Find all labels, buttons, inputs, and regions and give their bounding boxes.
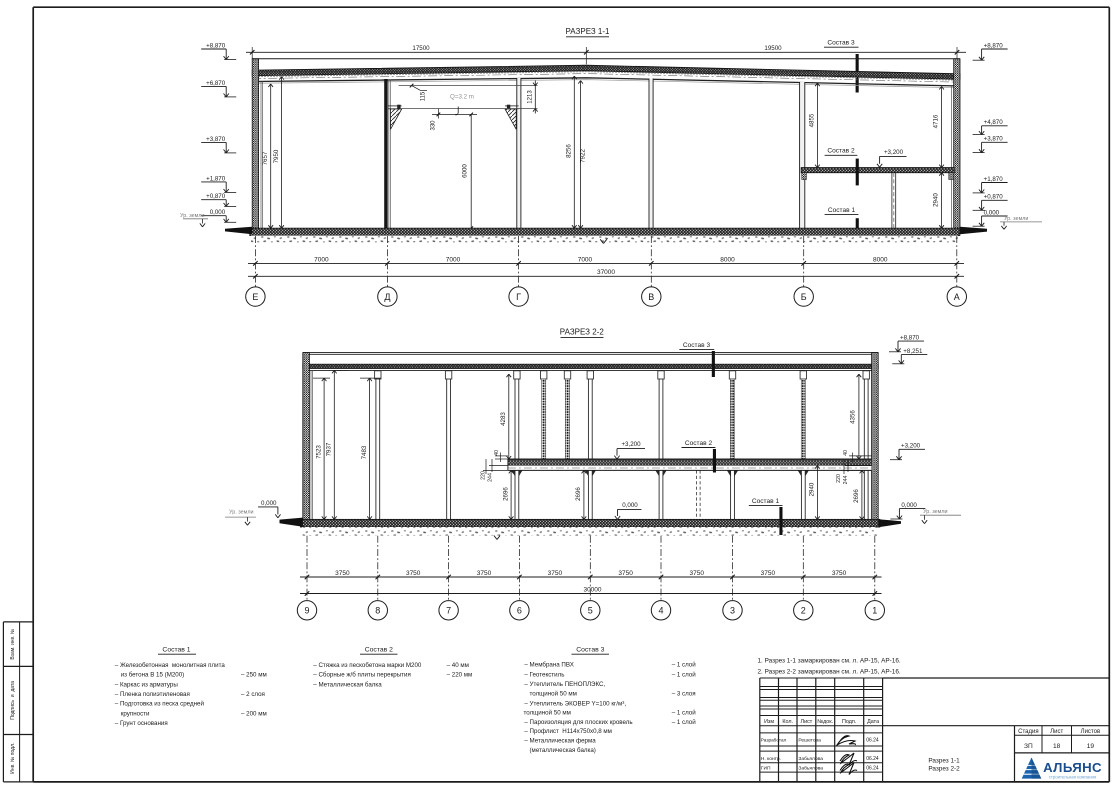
svg-text:В: В	[648, 292, 654, 302]
svg-text:– 1 слой: – 1 слой	[672, 710, 697, 717]
svg-text:Лист: Лист	[1050, 729, 1063, 735]
svg-text:4716: 4716	[932, 114, 939, 128]
svg-text:– Грунт основания: – Грунт основания	[115, 720, 168, 727]
svg-text:5: 5	[588, 606, 593, 616]
svg-text:Разрез 2-2: Разрез 2-2	[928, 765, 960, 772]
svg-text:3750: 3750	[832, 570, 847, 577]
svg-text:ЗП: ЗП	[1024, 743, 1033, 750]
svg-text:– 1 слой: – 1 слой	[672, 719, 697, 726]
svg-text:7922: 7922	[579, 149, 586, 163]
svg-text:+3,200: +3,200	[884, 149, 904, 156]
svg-text:06.24: 06.24	[866, 756, 879, 762]
svg-text:толщиной 50 мм: толщиной 50 мм	[524, 710, 571, 717]
svg-text:7937: 7937	[326, 442, 333, 456]
svg-text:Дата: Дата	[867, 719, 879, 725]
svg-text:0,000: 0,000	[901, 502, 917, 509]
svg-text:Н. контр.: Н. контр.	[761, 756, 781, 762]
svg-text:ГИП: ГИП	[761, 765, 771, 771]
svg-text:– 200 мм: – 200 мм	[241, 710, 267, 717]
svg-text:Состав 3: Состав 3	[576, 647, 604, 654]
svg-text:Состав 1: Состав 1	[828, 207, 856, 214]
svg-text:4: 4	[658, 606, 663, 616]
svg-text:– Металлическая балка: – Металлическая балка	[313, 681, 382, 688]
svg-text:Ур. земли: Ур. земли	[229, 510, 253, 516]
svg-text:толщиной 50 мм: толщиной 50 мм	[530, 691, 577, 698]
svg-text:17500: 17500	[412, 45, 430, 52]
svg-text:3750: 3750	[548, 570, 563, 577]
svg-text:крупности: крупности	[121, 710, 150, 717]
svg-text:2696: 2696	[502, 487, 509, 501]
svg-text:8000: 8000	[720, 256, 735, 263]
svg-text:+3,200: +3,200	[621, 441, 641, 448]
svg-text:3750: 3750	[335, 570, 350, 577]
svg-text:220: 220	[836, 474, 842, 483]
svg-text:19500: 19500	[764, 45, 782, 52]
svg-text:Забьялова: Забьялова	[798, 765, 823, 771]
svg-text:Изм: Изм	[764, 719, 774, 725]
svg-text:+1,870: +1,870	[206, 175, 226, 182]
svg-text:Состав 2: Состав 2	[365, 647, 393, 654]
svg-text:Г: Г	[516, 292, 521, 302]
svg-text:Ур. земли: Ур. земли	[1004, 216, 1028, 222]
svg-text:– Пленка полиэтиленовая: – Пленка полиэтиленовая	[115, 691, 190, 698]
svg-text:Подп.: Подп.	[842, 719, 856, 725]
svg-text:А: А	[954, 292, 960, 302]
svg-text:4356: 4356	[850, 410, 857, 424]
svg-text:– Профлист Н114х750х0,8 мм: – Профлист Н114х750х0,8 мм	[524, 728, 612, 735]
svg-text:Состав 3: Состав 3	[683, 342, 711, 349]
svg-text:Ур. земли: Ур. земли	[180, 213, 204, 219]
svg-text:Инв. № подл.: Инв. № подл.	[10, 743, 16, 774]
svg-text:Состав 2: Состав 2	[827, 148, 855, 155]
svg-text:8000: 8000	[873, 256, 888, 263]
svg-text:0,000: 0,000	[622, 502, 638, 509]
svg-text:РАЗРЕЗ 1-1: РАЗРЕЗ 1-1	[566, 27, 611, 36]
svg-text:– Железобетонная монолитная п: – Железобетонная монолитная плита	[115, 662, 226, 669]
svg-text:6: 6	[517, 606, 522, 616]
svg-text:+4,870: +4,870	[984, 119, 1004, 126]
svg-text:40: 40	[494, 450, 500, 456]
svg-text:из бетона В 15 (М200): из бетона В 15 (М200)	[121, 672, 185, 679]
svg-text:+3,870: +3,870	[206, 136, 226, 143]
svg-text:Разработал: Разработал	[761, 737, 787, 742]
svg-text:+3,200: +3,200	[901, 443, 921, 450]
svg-text:Состав 3: Состав 3	[827, 40, 855, 47]
svg-text:– 220 мм: – 220 мм	[447, 672, 473, 679]
svg-text:(металлическая балка): (металлическая балка)	[530, 747, 596, 754]
svg-text:2. Разрез 2-2 замаркирован см.: 2. Разрез 2-2 замаркирован см. л. АР-15,…	[758, 669, 901, 676]
svg-text:3750: 3750	[761, 570, 776, 577]
svg-text:+3,870: +3,870	[984, 136, 1004, 143]
svg-text:Забьялова: Забьялова	[798, 756, 823, 762]
svg-text:Состав 2: Состав 2	[685, 440, 713, 447]
svg-text:Лист: Лист	[801, 719, 813, 725]
svg-text:3750: 3750	[406, 570, 421, 577]
svg-text:2696: 2696	[575, 487, 582, 501]
svg-text:№док.: №док.	[817, 719, 833, 725]
svg-text:7000: 7000	[578, 256, 593, 263]
svg-text:7657: 7657	[262, 151, 269, 165]
svg-text:6000: 6000	[462, 164, 469, 178]
svg-text:Ур. земли: Ур. земли	[923, 509, 947, 515]
svg-text:– Стяжка из пескобетона марки: – Стяжка из пескобетона марки М200	[313, 662, 422, 669]
svg-text:Листов: Листов	[1081, 729, 1101, 735]
svg-text:0,000: 0,000	[210, 209, 226, 216]
svg-text:3750: 3750	[618, 570, 633, 577]
svg-text:– Мембрана ПВХ: – Мембрана ПВХ	[524, 662, 573, 669]
svg-text:30000: 30000	[583, 587, 601, 594]
svg-text:8: 8	[375, 606, 380, 616]
svg-text:0,000: 0,000	[984, 209, 1000, 216]
svg-text:Кол.: Кол.	[782, 719, 793, 725]
svg-text:– Утеплитель ЭКОВЕР Y=100 кг/м: – Утеплитель ЭКОВЕР Y=100 кг/м³,	[524, 700, 626, 707]
svg-text:– 3 слоя: – 3 слоя	[672, 691, 696, 698]
svg-text:1: 1	[872, 606, 877, 616]
svg-text:7: 7	[446, 606, 451, 616]
svg-text:3750: 3750	[690, 570, 705, 577]
svg-text:06.24: 06.24	[866, 766, 879, 772]
svg-text:– Металлическая ферма: – Металлическая ферма	[524, 738, 596, 745]
svg-text:244: 244	[843, 476, 849, 485]
svg-text:Стадия: Стадия	[1018, 729, 1038, 735]
svg-text:3: 3	[730, 606, 735, 616]
svg-text:– Подготовка из песка средней: – Подготовка из песка средней	[115, 701, 205, 708]
svg-text:Разрез 1-1: Разрез 1-1	[928, 757, 960, 764]
svg-text:37000: 37000	[597, 269, 615, 276]
svg-text:– 40 мм: – 40 мм	[447, 662, 469, 669]
svg-text:+8,870: +8,870	[206, 42, 226, 49]
svg-text:0,000: 0,000	[261, 500, 277, 507]
svg-text:– Каркас из арматуры: – Каркас из арматуры	[115, 681, 179, 688]
svg-text:220: 220	[481, 471, 487, 480]
svg-text:+0,870: +0,870	[206, 193, 226, 200]
svg-text:40: 40	[843, 450, 849, 456]
svg-text:19: 19	[1087, 743, 1095, 750]
svg-text:РАЗРЕЗ 2-2: РАЗРЕЗ 2-2	[560, 328, 605, 337]
svg-text:– 2 слоя: – 2 слоя	[241, 691, 265, 698]
svg-text:Е: Е	[252, 292, 258, 302]
svg-text:7483: 7483	[361, 445, 368, 459]
svg-text:Состав 1: Состав 1	[752, 498, 780, 505]
svg-text:18: 18	[1053, 743, 1061, 750]
svg-text:+0,870: +0,870	[984, 194, 1004, 201]
svg-text:– Утеплитель ПЕНОПЛЭКС,: – Утеплитель ПЕНОПЛЭКС,	[524, 681, 605, 688]
svg-text:+8,870: +8,870	[900, 335, 920, 342]
svg-text:2940: 2940	[809, 482, 816, 496]
svg-text:330: 330	[431, 120, 437, 131]
svg-text:Решетова: Решетова	[798, 737, 821, 743]
svg-text:8256: 8256	[566, 144, 573, 158]
svg-text:7950: 7950	[273, 149, 280, 163]
svg-text:– 250 мм: – 250 мм	[241, 672, 267, 679]
svg-text:+6,870: +6,870	[206, 80, 226, 87]
svg-text:строительная компания: строительная компания	[1049, 775, 1097, 780]
svg-text:+8,870: +8,870	[984, 42, 1004, 49]
svg-text:2: 2	[801, 606, 806, 616]
svg-text:АЛЬЯНС: АЛЬЯНС	[1043, 760, 1102, 775]
svg-text:7000: 7000	[446, 256, 461, 263]
svg-text:Д: Д	[384, 292, 390, 302]
svg-text:+8,251: +8,251	[903, 348, 923, 355]
svg-text:1213: 1213	[527, 90, 533, 104]
svg-text:– Пароизоляция для плоских кро: – Пароизоляция для плоских кровель	[524, 719, 632, 726]
svg-text:115: 115	[420, 91, 426, 101]
svg-text:2696: 2696	[853, 489, 860, 503]
svg-text:Q=3.2 m: Q=3.2 m	[450, 94, 474, 101]
svg-text:– 1 слой: – 1 слой	[672, 662, 697, 669]
svg-text:7000: 7000	[314, 256, 329, 263]
svg-text:2940: 2940	[932, 193, 939, 207]
svg-text:Взам. инв. №: Взам. инв. №	[10, 629, 16, 660]
svg-text:Б: Б	[801, 292, 807, 302]
svg-text:06.24: 06.24	[866, 738, 879, 744]
svg-text:3750: 3750	[477, 570, 492, 577]
svg-text:– 1 слой: – 1 слой	[672, 671, 697, 678]
svg-text:– Геотекстиль: – Геотекстиль	[524, 671, 564, 678]
svg-text:244: 244	[488, 473, 494, 482]
svg-text:4855: 4855	[809, 113, 816, 127]
svg-text:– Сборные ж/б плиты перекрытия: – Сборные ж/б плиты перекрытия	[313, 672, 411, 679]
svg-text:+1,870: +1,870	[984, 176, 1004, 183]
svg-text:1. Разрез 1-1 замаркирован см.: 1. Разрез 1-1 замаркирован см. л. АР-15,…	[758, 658, 901, 665]
svg-text:Состав 1: Состав 1	[162, 647, 190, 654]
svg-text:Подпись и дата: Подпись и дата	[10, 681, 16, 720]
svg-text:9: 9	[304, 606, 309, 616]
svg-text:7523: 7523	[315, 445, 322, 459]
svg-text:4283: 4283	[500, 412, 507, 426]
